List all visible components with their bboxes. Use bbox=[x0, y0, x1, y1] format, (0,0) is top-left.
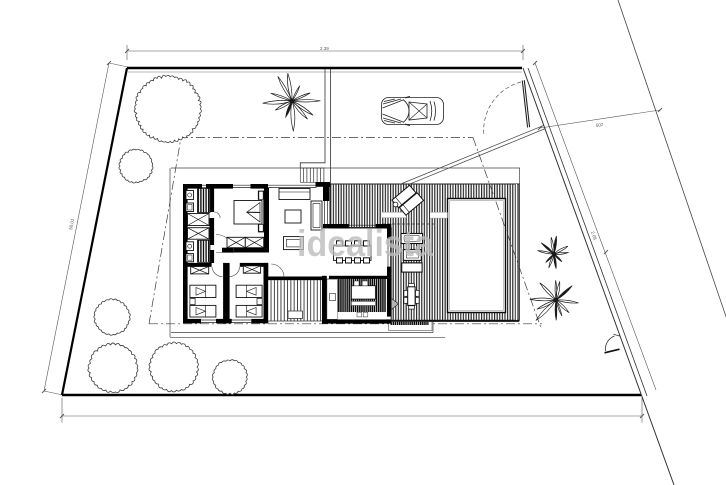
svg-text:idealista: idealista bbox=[297, 223, 433, 264]
svg-text:2.39: 2.39 bbox=[320, 46, 329, 51]
